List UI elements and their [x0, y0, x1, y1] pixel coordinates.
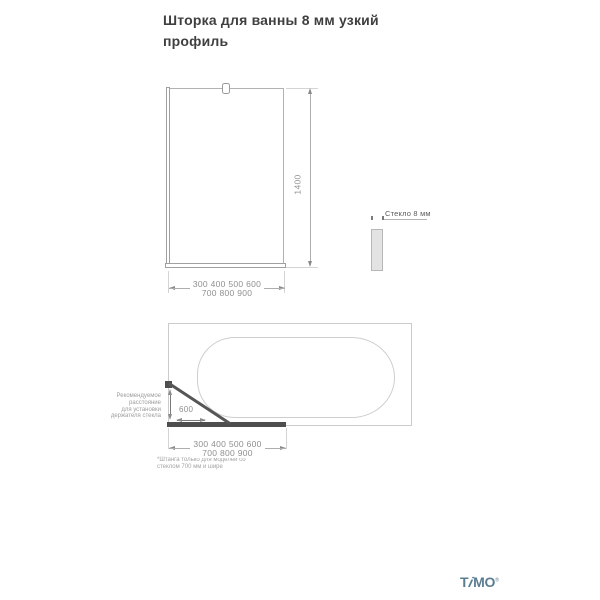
- holder-note: Рекомендуемое расстояние для установки д…: [100, 393, 161, 420]
- dim-arrow-up-icon: [308, 88, 312, 94]
- front-width-dims-row2: 700 800 900: [193, 289, 261, 298]
- holder-note-line1: Рекомендуемое: [100, 393, 161, 400]
- dim-ext-line: [286, 267, 318, 268]
- holder-note-line2: расстояние: [100, 400, 161, 407]
- page-title: Шторка для ванны 8 мм узкий профиль: [163, 10, 463, 52]
- brand-logo-mo: MO: [473, 574, 495, 590]
- page-title-line1: Шторка для ванны 8 мм узкий: [163, 10, 463, 31]
- dim-arrow-down-icon: [308, 261, 312, 267]
- dim-arrow-left-icon: [176, 418, 182, 422]
- glass-label-leader-line: [384, 219, 427, 220]
- dim-arrow-up-icon: [168, 389, 172, 395]
- holder-note-line4: держателя стекла: [100, 413, 161, 420]
- holder-distance-label: 600: [179, 405, 193, 414]
- brand-logo: TiMO®: [460, 574, 499, 590]
- top-width-dims: 300 400 500 600 700 800 900: [169, 440, 286, 461]
- footnote-line2: стеклом 700 мм и шире: [157, 464, 246, 471]
- height-dim-line: [310, 90, 311, 265]
- top-width-dims-row2: 700 800 900: [193, 449, 261, 458]
- glass-thickness-tick: [371, 216, 373, 220]
- dim-ext-line: [286, 428, 287, 449]
- glass-cross-section: [371, 229, 383, 271]
- product-spec-sheet: Шторка для ванны 8 мм узкий профиль 1400…: [0, 0, 600, 600]
- dim-arrow-down-icon: [168, 414, 172, 420]
- registered-mark: ®: [495, 577, 498, 583]
- holder-note-line3: для установки: [100, 407, 161, 414]
- dim-arrow-right-icon: [200, 418, 206, 422]
- panel-right-edge: [283, 88, 284, 266]
- front-width-dims: 300 400 500 600 700 800 900: [169, 280, 285, 301]
- dim-ext-line: [286, 88, 318, 89]
- panel-top-clip: [222, 83, 230, 94]
- panel-bottom-profile: [165, 263, 286, 268]
- page-title-line2: профиль: [163, 31, 463, 52]
- bathtub-basin: [197, 337, 395, 418]
- height-dim-label: 1400: [294, 170, 303, 200]
- panel-left-profile: [166, 87, 170, 266]
- glass-thickness-label: Стекло 8 мм: [385, 209, 431, 218]
